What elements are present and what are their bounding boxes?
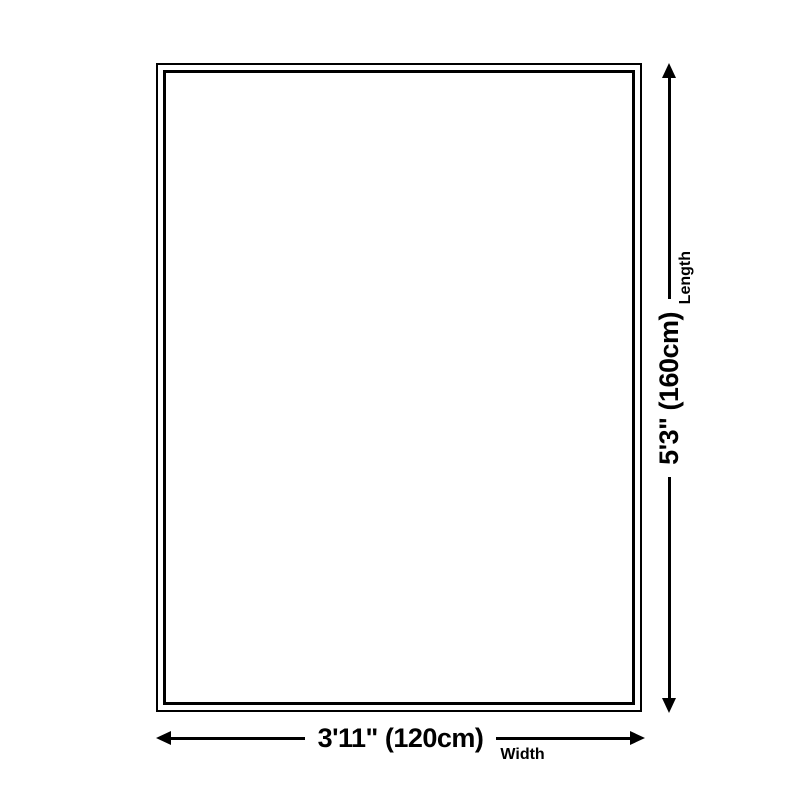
width-line-right: Width <box>496 737 630 740</box>
width-axis-label: Width <box>500 746 544 764</box>
length-axis-label: Length <box>677 251 695 304</box>
length-dimension-arrow: Length 5'3" (160cm) <box>649 63 689 713</box>
length-value: 5'3" (160cm) <box>654 299 685 478</box>
arrow-left-icon <box>156 731 171 745</box>
dimension-diagram: Length 5'3" (160cm) 3'11" (120cm) Width <box>0 0 800 800</box>
length-line-top: Length <box>668 78 671 299</box>
arrow-down-icon <box>662 698 676 713</box>
width-value: 3'11" (120cm) <box>305 723 497 754</box>
width-line-left <box>171 737 305 740</box>
width-dimension-arrow: 3'11" (120cm) Width <box>156 722 645 754</box>
rug-outline-outer <box>156 63 642 712</box>
arrow-right-icon <box>630 731 645 745</box>
arrow-up-icon <box>662 63 676 78</box>
length-line-bottom <box>668 477 671 698</box>
rug-outline-inner <box>163 70 635 705</box>
